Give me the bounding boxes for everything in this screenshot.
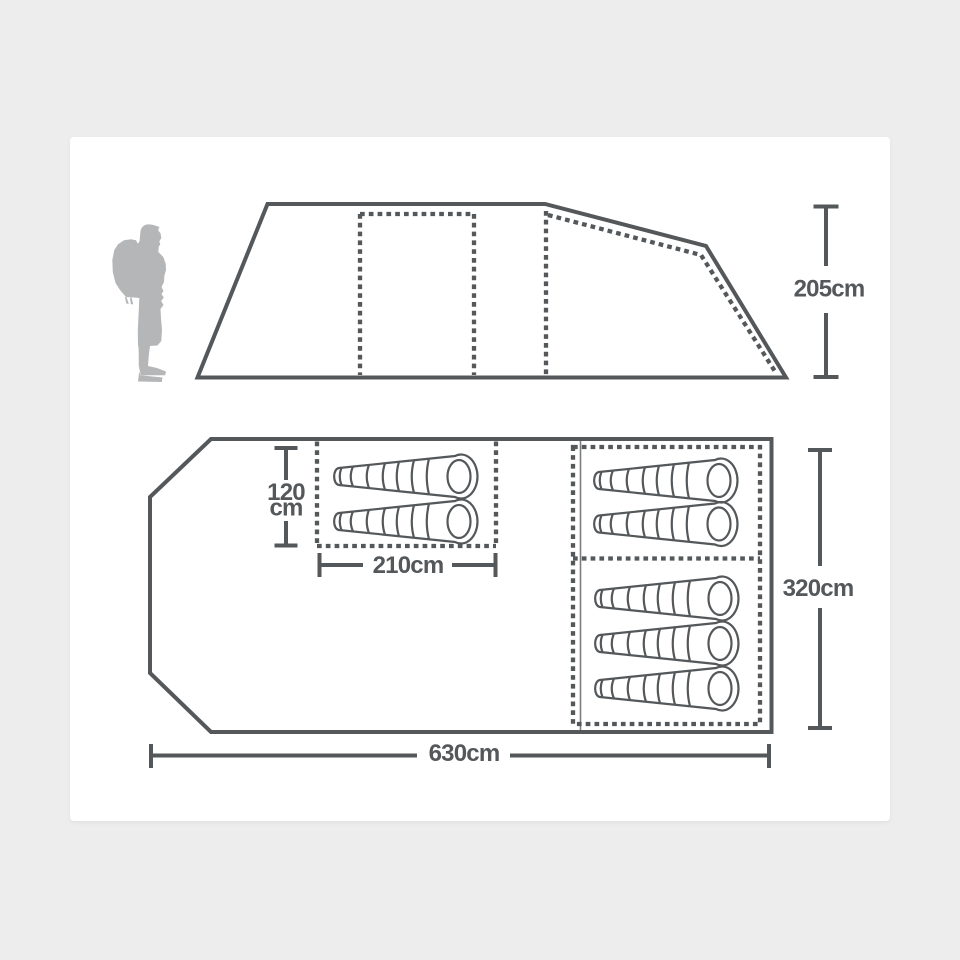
svg-text:320cm: 320cm [783, 575, 854, 602]
svg-text:205cm: 205cm [794, 276, 865, 303]
svg-text:210cm: 210cm [373, 552, 444, 579]
svg-text:cm: cm [269, 495, 302, 522]
svg-text:630cm: 630cm [429, 740, 500, 767]
